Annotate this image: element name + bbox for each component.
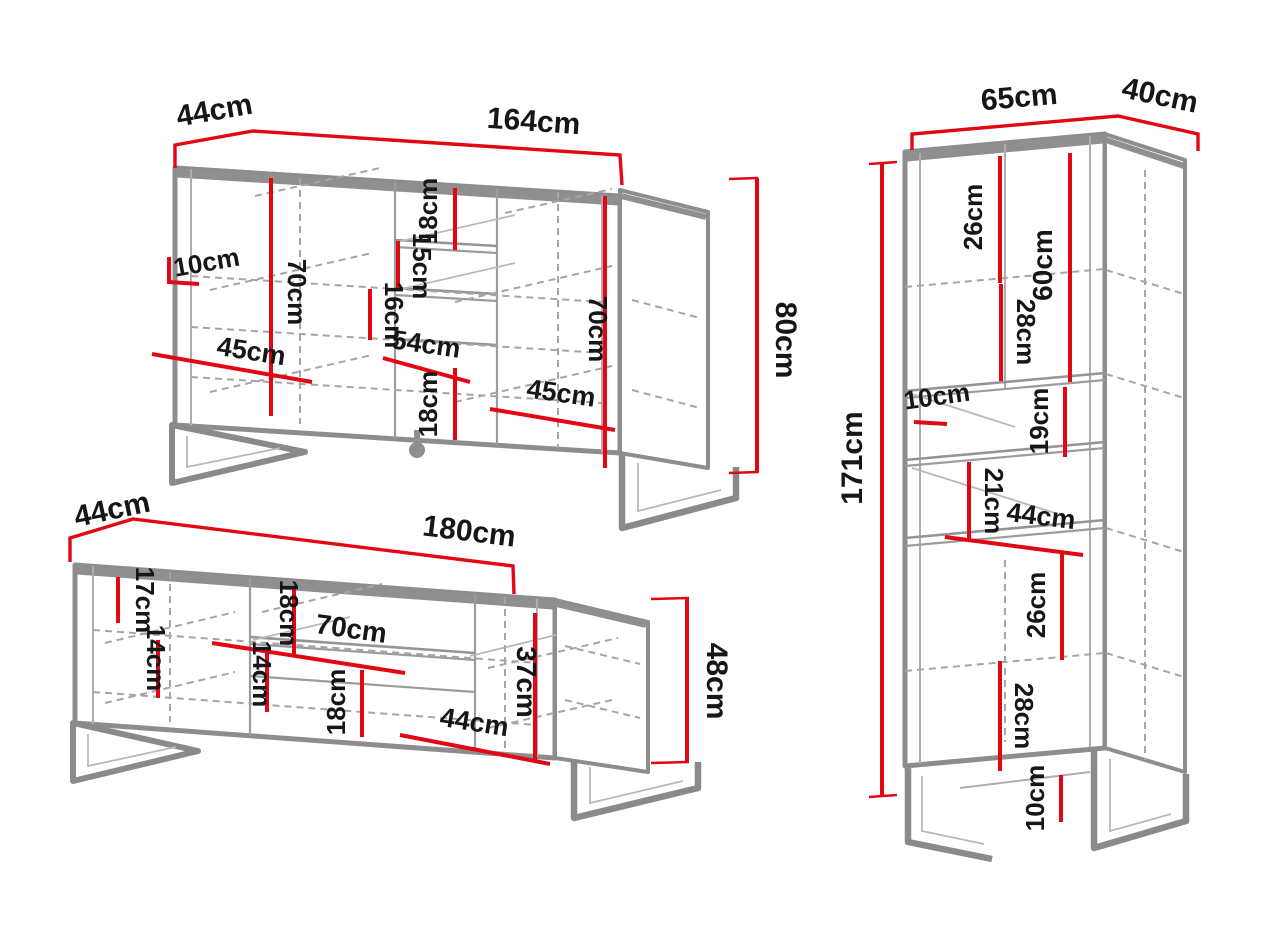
- cabinet-niche-upper-label: 19cm: [1024, 388, 1054, 455]
- cabinet-width-label: 65cm: [980, 78, 1059, 118]
- tv-stand-left-shelf-gap-label: 14cm: [141, 625, 171, 692]
- sideboard-upper-shelf-gap-label: 15cm: [407, 233, 437, 300]
- sideboard-drawing: 44cm 164cm 70cm 10cm 18cm 15cm 16cm 45cm…: [152, 88, 802, 528]
- tv-stand-door-height-label: 37cm: [511, 646, 542, 718]
- tv-stand-height-label: 48cm: [700, 643, 733, 720]
- cabinet-upper-lower-gap-label: 28cm: [1011, 299, 1041, 366]
- sideboard-bottom-inset-label: 18cm: [413, 371, 443, 438]
- tv-stand-width-label: 180cm: [421, 510, 518, 554]
- cabinet-leg-height-label: 10cm: [1020, 765, 1050, 832]
- tv-stand-center-shelf-gap-label: 14cm: [247, 641, 277, 708]
- tv-stand-drawer-height-label: 18cm: [321, 669, 351, 736]
- cabinet-right-leg-inner: [1110, 759, 1171, 831]
- sideboard-side-face: [620, 190, 708, 468]
- sideboard-height-label: 80cm: [769, 302, 802, 379]
- diagram-canvas: 44cm 164cm 70cm 10cm 18cm 15cm 16cm 45cm…: [0, 0, 1268, 951]
- furniture-dimensions-diagram: 44cm 164cm 70cm 10cm 18cm 15cm 16cm 45cm…: [0, 0, 1268, 951]
- tv-stand-side-face: [555, 600, 648, 772]
- cabinet-upper-section-label: 60cm: [1027, 229, 1058, 301]
- sideboard-right-door-height-label: 70cm: [583, 296, 613, 363]
- sideboard-right-leg: [622, 455, 736, 528]
- cabinet-lower-shelf-gap-label: 26cm: [1021, 572, 1051, 639]
- knob-icon: [409, 442, 425, 458]
- cabinet-lower-section-label: 28cm: [1009, 683, 1039, 750]
- cabinet-drawing: 65cm 40cm 171cm 26cm 60cm 28cm 10cm 19cm…: [836, 72, 1201, 859]
- cabinet-height-label: 171cm: [836, 411, 869, 504]
- sideboard-depth-label: 44cm: [174, 88, 255, 134]
- tv-stand-back-inset-label: 17cm: [130, 567, 160, 634]
- cabinet-depth-label: 40cm: [1119, 72, 1201, 120]
- sideboard-width-label: 164cm: [486, 102, 581, 141]
- cabinet-left-leg: [908, 768, 992, 859]
- tv-stand-niche-height-label: 18cm: [274, 580, 304, 647]
- sideboard-left-door-height-label: 70cm: [282, 259, 312, 326]
- tv-stand-drawing: 44cm 180cm 17cm 14cm 18cm 14cm 70cm 18cm…: [70, 486, 733, 818]
- cabinet-upper-shelf-gap-label: 26cm: [958, 184, 988, 251]
